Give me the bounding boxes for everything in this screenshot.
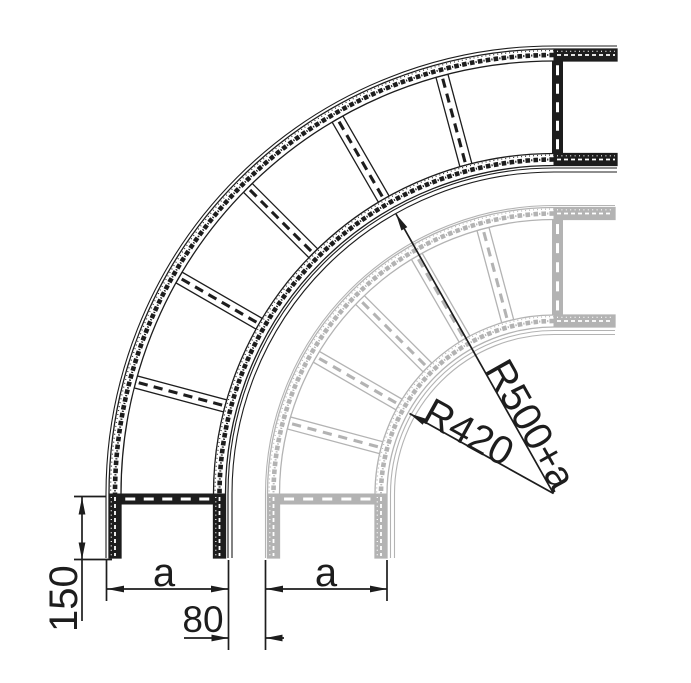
dim-width-main-label: a xyxy=(153,551,176,595)
cable-ladder-bend-drawing: 150 a a 80 R500+a R420 xyxy=(0,0,691,683)
technical-drawing-page: 150 a a 80 R500+a R420 xyxy=(0,0,691,683)
dim-150-label: 150 xyxy=(42,565,86,632)
dim-gap-80-label: 80 xyxy=(182,599,223,640)
dim-width-ghost-label: a xyxy=(315,551,338,595)
